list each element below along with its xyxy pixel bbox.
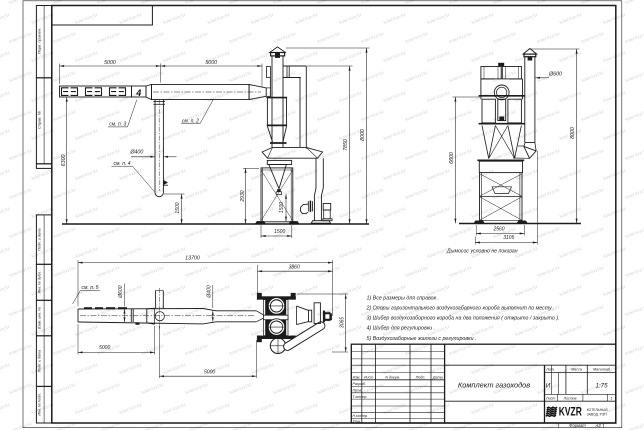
svg-text:7850: 7850 [343, 139, 349, 151]
svg-text:4) Шибер для регулировки .: 4) Шибер для регулировки . [367, 326, 436, 332]
svg-text:Т.контр.: Т.контр. [353, 395, 368, 399]
svg-text:2560: 2560 [492, 227, 504, 233]
svg-text:см. п. 4: см. п. 4 [113, 161, 130, 167]
svg-text:Подп. и дата: Подп. и дата [38, 228, 42, 251]
svg-text:Лист: Лист [545, 397, 555, 401]
svg-text:8000: 8000 [360, 129, 366, 141]
svg-text:1) Все размеры для справок .: 1) Все размеры для справок . [367, 296, 440, 302]
svg-text:3105: 3105 [503, 235, 514, 241]
svg-text:Формат: Формат [569, 423, 586, 428]
svg-text:Инв. № дубл.: Инв. № дубл. [38, 271, 42, 293]
svg-text:Лист: Лист [363, 375, 374, 379]
svg-text:1500: 1500 [279, 202, 285, 213]
svg-text:5) Воздухозаборные жалюзи с р: 5) Воздухозаборные жалюзи с регулировки … [367, 336, 477, 342]
svg-text:Н.контр.: Н.контр. [353, 414, 369, 418]
svg-text:Ø600: Ø600 [548, 72, 562, 78]
svg-text:2930: 2930 [240, 190, 246, 202]
svg-text:Подп. и дата: Подп. и дата [38, 350, 42, 373]
svg-text:Дата: Дата [432, 375, 443, 379]
svg-text:1:75: 1:75 [595, 382, 608, 389]
svg-text:3) Шибер воздухозаборного кор: 3) Шибер воздухозаборного короба на два … [367, 316, 560, 322]
svg-text:Взам. инв. №: Взам. инв. № [38, 307, 42, 329]
svg-text:13700: 13700 [185, 255, 200, 261]
svg-text:Инв. № подл.: Инв. № подл. [38, 393, 42, 415]
svg-text:ЗАВОД. РЭП: ЗАВОД. РЭП [587, 413, 607, 417]
svg-text:Масса: Масса [571, 368, 582, 372]
svg-text:см. п. 5: см. п. 5 [81, 285, 98, 291]
svg-text:Ø600: Ø600 [118, 285, 124, 298]
svg-text:5000: 5000 [99, 345, 110, 351]
svg-text:Дымосос условно не показан: Дымосос условно не показан [446, 248, 518, 254]
svg-text:3065: 3065 [339, 317, 345, 328]
svg-text:5000: 5000 [204, 370, 215, 376]
svg-text:4: 4 [135, 88, 141, 98]
svg-text:5000: 5000 [104, 60, 116, 66]
svg-text:Пров.: Пров. [353, 389, 363, 393]
svg-text:Ø400: Ø400 [129, 150, 143, 156]
svg-text:N докум.: N докум. [385, 375, 400, 379]
svg-text:1500: 1500 [274, 229, 285, 235]
svg-text:1: 1 [611, 397, 613, 401]
svg-text:3860: 3860 [289, 265, 300, 271]
svg-text:И: И [546, 382, 551, 389]
svg-text:1500: 1500 [175, 202, 181, 213]
svg-text:Справ. №: Справ. № [37, 110, 42, 129]
svg-text:6300: 6300 [61, 154, 67, 166]
svg-text:2) Опоры горизонтального возд: 2) Опоры горизонтального воздухозаборног… [366, 306, 555, 312]
svg-text:6600: 6600 [449, 152, 455, 164]
svg-text:8000: 8000 [570, 127, 576, 139]
svg-text:KVZR: KVZR [559, 404, 582, 418]
svg-text:Масштаб: Масштаб [593, 368, 611, 372]
svg-text:Лит.: Лит. [545, 368, 554, 372]
svg-text:5000: 5000 [205, 60, 217, 66]
svg-text:А3: А3 [594, 423, 601, 428]
svg-text:Изм.: Изм. [353, 375, 361, 379]
svg-text:Перв. примен.: Перв. примен. [37, 28, 42, 55]
svg-text:Подп.: Подп. [416, 375, 426, 379]
svg-text:КОТЕЛЬНЫЙ: КОТЕЛЬНЫЙ [587, 408, 608, 412]
svg-text:Ø400: Ø400 [207, 285, 213, 298]
svg-text:Листов: Листов [562, 397, 576, 401]
svg-text:Комплект газоходов: Комплект газоходов [458, 380, 530, 389]
svg-text:Разраб.: Разраб. [353, 382, 366, 386]
svg-text:Утв.: Утв. [353, 420, 361, 424]
